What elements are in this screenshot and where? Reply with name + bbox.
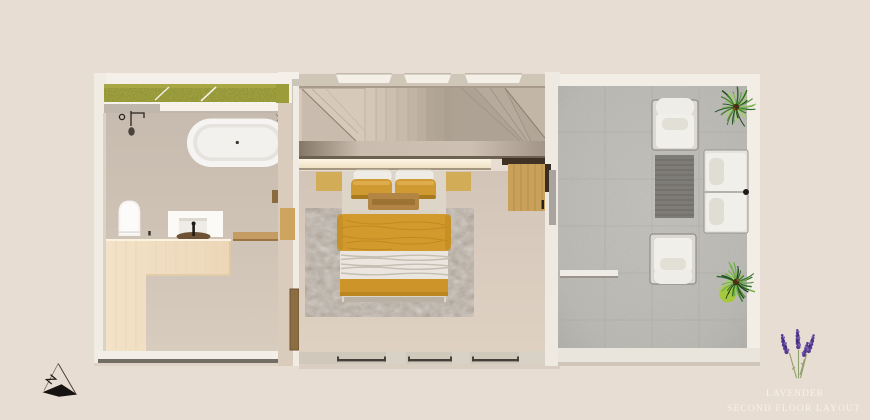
svg-text:LAVENDER: LAVENDER [766, 389, 824, 399]
svg-text:SECOND FLOOR LAYOUT: SECOND FLOOR LAYOUT [727, 404, 861, 414]
